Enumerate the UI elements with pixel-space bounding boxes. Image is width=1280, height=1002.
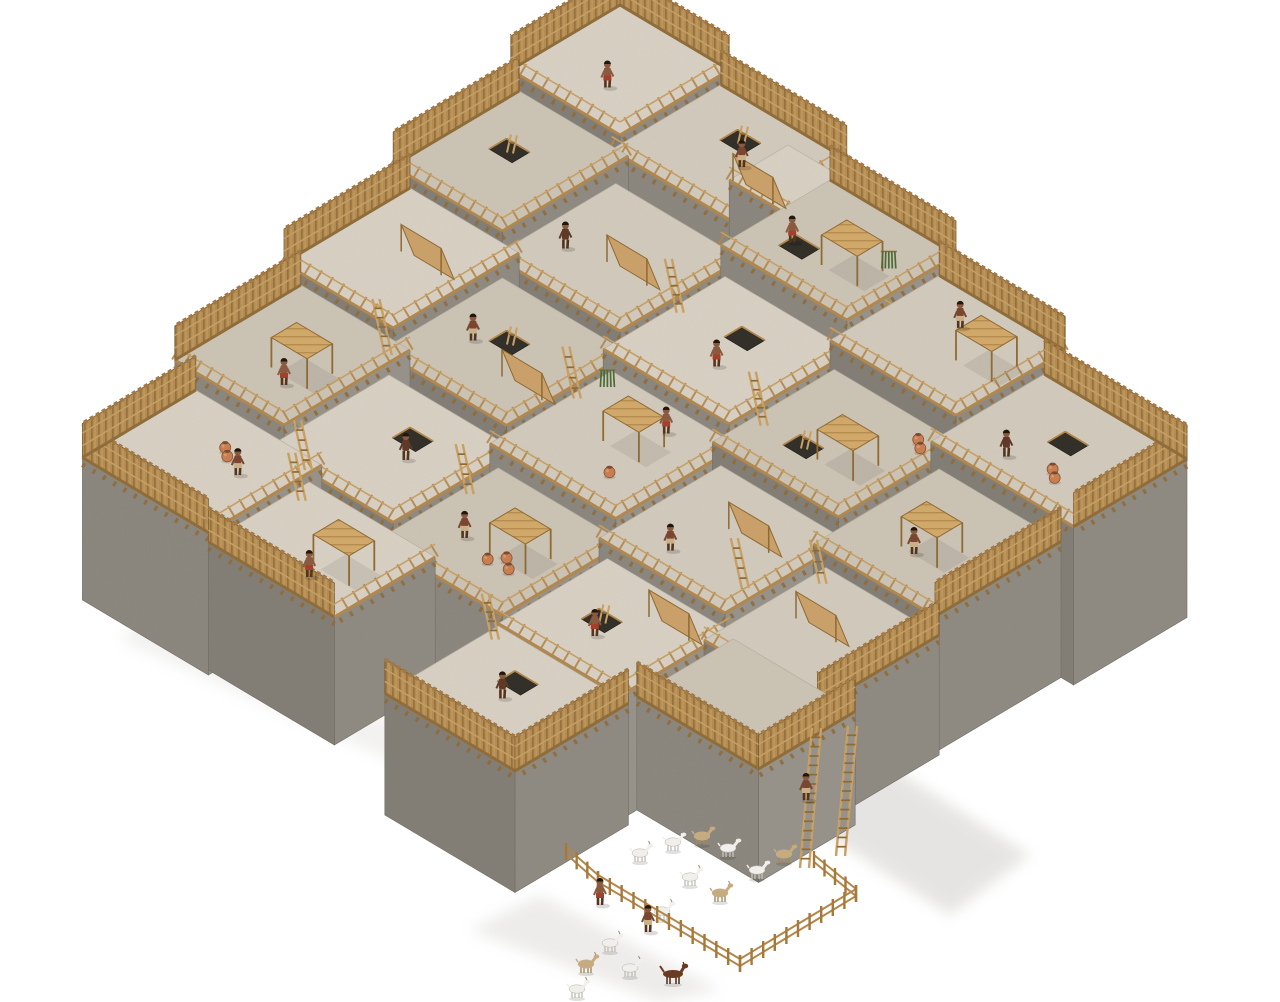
hanging-plant [613, 370, 614, 387]
goat [663, 830, 686, 854]
goat [710, 881, 733, 905]
animal-pen-fence [566, 854, 598, 882]
settlement-illustration [0, 0, 1280, 1002]
illustration-stage: 3D reconstruction of a Neolithic walled … [0, 0, 1280, 1002]
cast-shadow [470, 895, 720, 1002]
hanging-plant [892, 252, 893, 269]
hanging-plant [895, 252, 896, 269]
hanging-plant [885, 252, 886, 269]
hanging-plant [600, 370, 601, 387]
goat [567, 977, 590, 1001]
hanging-plant [882, 252, 883, 269]
goat [680, 865, 703, 889]
hanging-plant [604, 370, 605, 387]
goat [630, 841, 653, 865]
person-figure [594, 878, 610, 908]
hanging-plant [610, 370, 611, 387]
